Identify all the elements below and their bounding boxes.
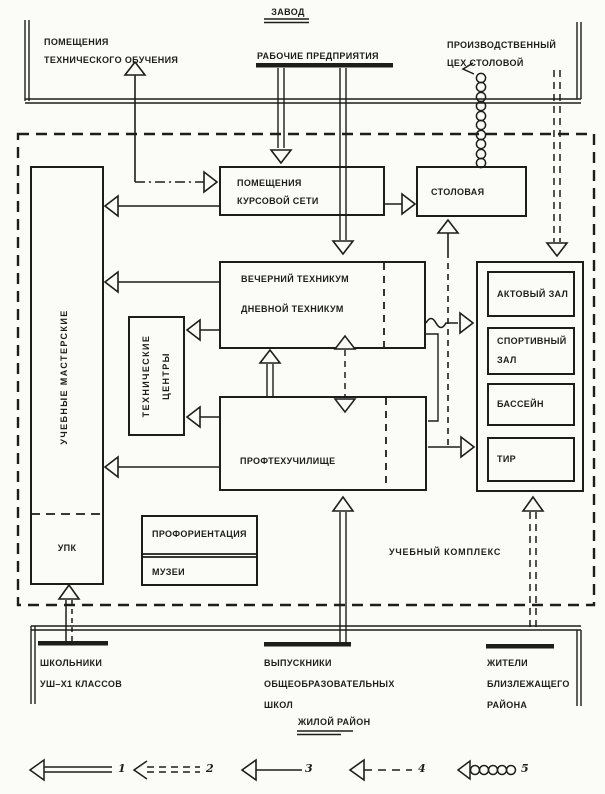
legend-item-3-symbol [242, 760, 302, 780]
district-label: ЖИЛОЙ РАЙОН [298, 716, 370, 728]
evening-technikum-label: ВЕЧЕРНИЙ ТЕХНИКУМ [241, 273, 349, 285]
arrow-vocational-to-workshops [105, 457, 219, 477]
education-complex-diagram: ЗАВОД ПОМЕЩЕНИЯ ТЕХНИЧЕСКОГО ОБУЧЕНИЯ РА… [0, 0, 605, 794]
arrow-vocational-to-tech-centers [187, 407, 219, 427]
arrow-technikum-to-tech-centers [187, 320, 219, 340]
legend-item-5-number: 5 [521, 762, 529, 775]
arrow-vocational-to-technikum [260, 350, 280, 396]
assembly-hall-label: АКТОВЫЙ ЗАЛ [487, 271, 575, 317]
day-technikum-label: ДНЕВНОЙ ТЕХНИКУМ [241, 303, 344, 315]
workers-bar [256, 63, 393, 68]
graduates-label: ВЫПУСКНИКИ ОБЩЕОБРАЗОВАТЕЛЬНЫХ ШКОЛ [264, 653, 395, 716]
legend-item-1-number: 1 [118, 762, 126, 775]
arrow-course-to-canteen [385, 194, 415, 214]
arrow-to-canteen-up [438, 220, 458, 446]
residents-bar [486, 644, 554, 649]
legend-item-2-number: 2 [206, 762, 214, 775]
legend-item-2-symbol [134, 761, 200, 779]
arrow-technikum-vocational-dashed [335, 336, 355, 412]
legend-item-5-symbol [458, 761, 516, 779]
factory-label: ЗАВОД [258, 6, 318, 18]
legend-item-4-symbol [350, 760, 412, 780]
arrow-schoolkids-to-upk [59, 585, 79, 642]
shooting-range-label: ТИР [487, 437, 575, 482]
arrow-workers-to-course-rooms [271, 68, 291, 163]
vocational-school-label: ПРОФТЕХУЧИЛИЩЕ [240, 455, 335, 467]
arrow-course-to-workshops [105, 196, 219, 216]
arrow-factory-to-facilities-dashed [547, 70, 567, 256]
canteen-label: СТОЛОВАЯ [431, 186, 484, 198]
complex-label: УЧЕБНЫЙ КОМПЛЕКС [389, 546, 501, 558]
arrow-course-to-tech-training [125, 62, 217, 192]
arrow-vocational-to-facilities [428, 437, 474, 457]
graduates-bar [264, 642, 351, 647]
upk-label: УПК [30, 542, 104, 554]
career-guidance-label: ПРОФОРИЕНТАЦИЯ [152, 528, 247, 540]
arrow-workers-to-technikum [333, 68, 353, 254]
pool-label: БАССЕЙН [487, 383, 575, 426]
line-technikum-to-vocational-right [426, 334, 438, 421]
source-bars [38, 63, 554, 649]
legend-item-1-symbol [30, 760, 112, 780]
arrow-residents-to-facilities-dashed [523, 497, 543, 628]
arrow-technikum-to-workshops [105, 272, 219, 292]
district-underline [297, 731, 353, 735]
legend-item-4-number: 4 [418, 762, 426, 775]
tech-training-label: ПОМЕЩЕНИЯ ТЕХНИЧЕСКОГО ОБУЧЕНИЯ [44, 33, 178, 69]
arrow-technikum-to-facilities [426, 313, 473, 333]
legend-item-3-number: 3 [305, 762, 313, 775]
museums-label: МУЗЕИ [152, 566, 185, 578]
schoolkids-label: ШКОЛЬНИКИ УШ–Х1 КЛАССОВ [40, 653, 122, 695]
course-rooms-label: ПОМЕЩЕНИЯ КУРСОВОЙ СЕТИ [237, 174, 319, 210]
factory-underline [264, 19, 309, 23]
residents-label: ЖИТЕЛИ БЛИЗЛЕЖАЩЕГО РАЙОНА [487, 653, 570, 716]
sports-hall-label: СПОРТИВНЫЙ ЗАЛ [487, 327, 575, 375]
canteen-shop-coil [463, 63, 486, 168]
arrow-graduates-to-vocational [333, 497, 353, 643]
schoolkids-bar [38, 641, 108, 646]
workers-label: РАБОЧИЕ ПРЕДПРИЯТИЯ [257, 50, 379, 62]
workshops-label: УЧЕБНЫЕ МАСТЕРСКИЕ [54, 309, 74, 444]
canteen-shop-label: ПРОИЗВОДСТВЕННЫЙ ЦЕХ СТОЛОВОЙ [447, 36, 556, 72]
tech-centers-label: ТЕХНИЧЕСКИЕ ЦЕНТРЫ [136, 335, 176, 418]
